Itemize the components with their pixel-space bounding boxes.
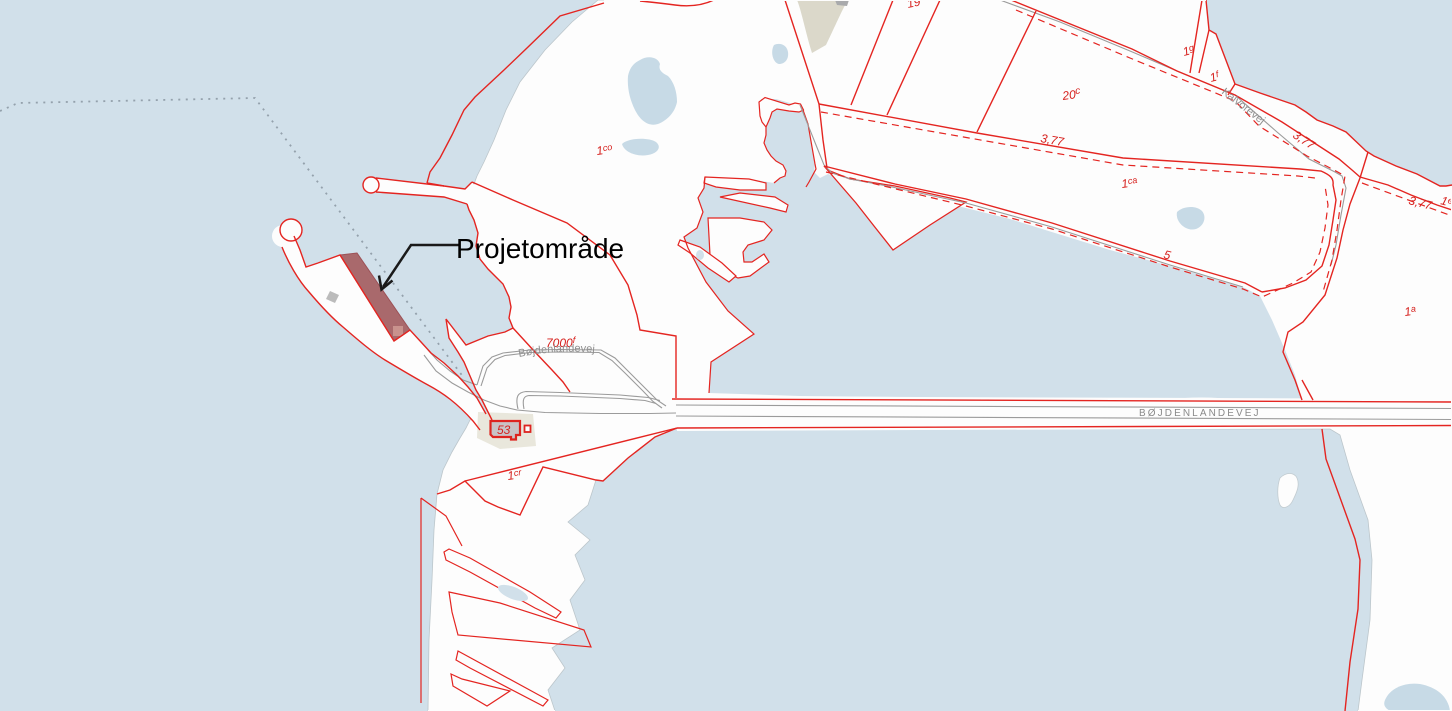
svg-text:Projetområde: Projetområde <box>456 233 624 264</box>
svg-text:BØJDENLANDEVEJ: BØJDENLANDEVEJ <box>1139 408 1261 419</box>
svg-text:53: 53 <box>497 423 511 437</box>
